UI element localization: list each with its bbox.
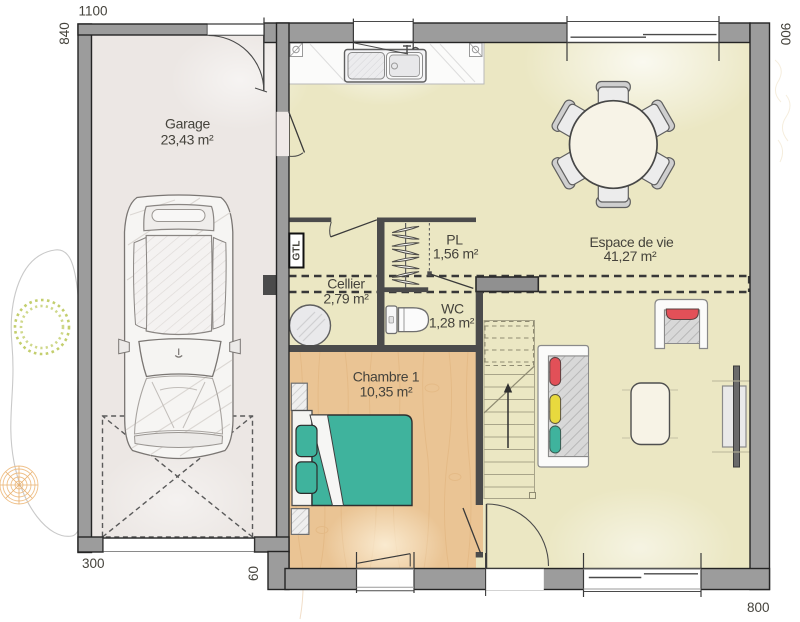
svg-text:Chambre 1: Chambre 1 (353, 369, 420, 385)
svg-text:23,43 m²: 23,43 m² (161, 132, 214, 148)
svg-text:1,28 m²: 1,28 m² (429, 315, 475, 331)
svg-text:GTL: GTL (292, 241, 303, 261)
svg-text:60: 60 (246, 566, 261, 581)
svg-text:Cellier: Cellier (327, 276, 365, 292)
svg-text:300: 300 (82, 556, 105, 571)
svg-text:Garage: Garage (165, 116, 210, 132)
svg-text:840: 840 (57, 22, 72, 45)
svg-text:1100: 1100 (78, 4, 107, 19)
svg-text:1,56 m²: 1,56 m² (433, 246, 479, 262)
svg-text:900: 900 (778, 23, 793, 46)
svg-text:10,35 m²: 10,35 m² (360, 384, 413, 400)
svg-text:800: 800 (747, 600, 770, 615)
svg-text:2,79 m²: 2,79 m² (323, 291, 369, 307)
svg-text:41,27 m²: 41,27 m² (604, 248, 657, 264)
